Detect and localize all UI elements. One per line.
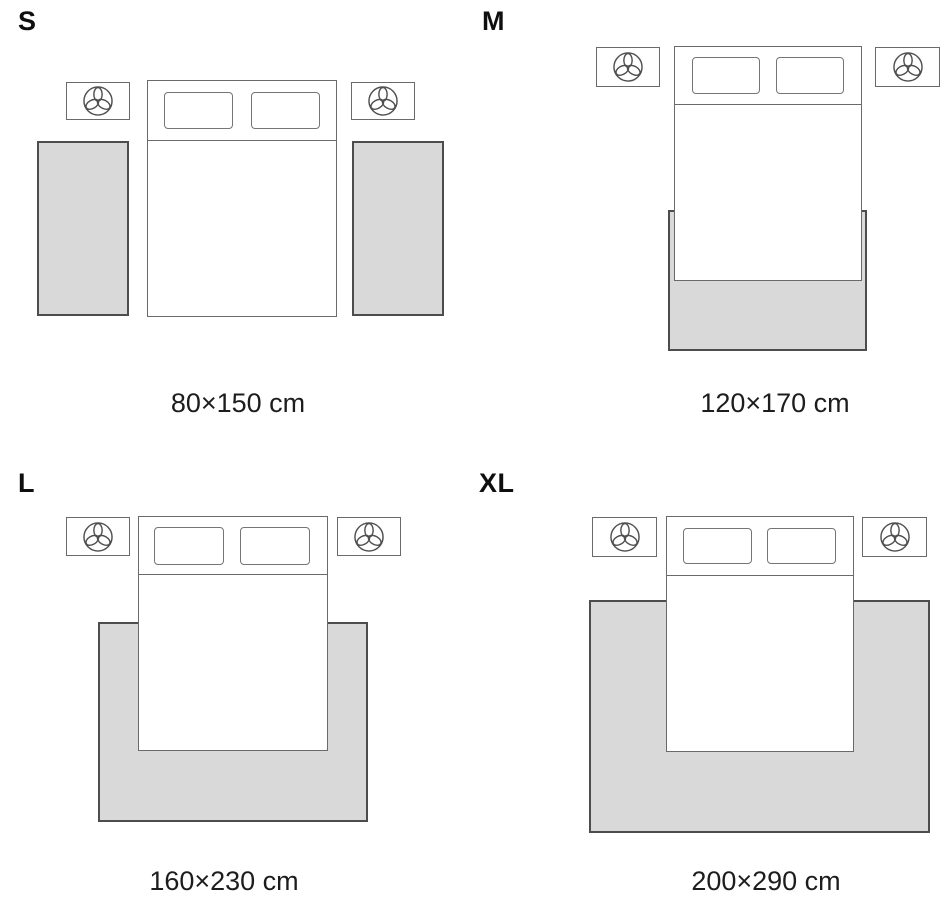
rug-left <box>37 141 129 316</box>
pillow-right <box>776 57 844 94</box>
bed <box>674 46 862 281</box>
size-label-m: M <box>482 8 505 35</box>
size-caption-s: 80×150 cm <box>88 388 388 419</box>
bed <box>147 80 337 317</box>
size-caption-l: 160×230 cm <box>74 866 374 897</box>
nightstand-left <box>596 47 660 87</box>
nightstand-left <box>592 517 657 557</box>
pillow-left <box>683 528 752 564</box>
pillow-right <box>240 527 310 565</box>
rug-size-guide-diagram: S 80×150 cm M <box>0 0 950 900</box>
size-panel-m: M 120×170 cm <box>475 0 950 450</box>
size-panel-s: S 80×150 cm <box>0 0 475 450</box>
pillow-right <box>251 92 320 129</box>
size-caption-m: 120×170 cm <box>625 388 925 419</box>
pillow-left <box>154 527 224 565</box>
pillow-left <box>164 92 233 129</box>
size-label-l: L <box>18 470 35 497</box>
size-label-s: S <box>18 8 37 35</box>
nightstand-right <box>875 47 940 87</box>
trefoil-plant-icon <box>365 83 401 119</box>
pillow-right <box>767 528 836 564</box>
nightstand-right <box>351 82 415 120</box>
size-label-xl: XL <box>479 470 515 497</box>
rug-right <box>352 141 444 316</box>
size-panel-l: L 160×230 cm <box>0 450 475 900</box>
trefoil-plant-icon <box>610 49 646 85</box>
size-caption-xl: 200×290 cm <box>616 866 916 897</box>
nightstand-left <box>66 517 130 556</box>
bed <box>138 516 328 751</box>
trefoil-plant-icon <box>80 519 116 555</box>
nightstand-right <box>337 517 401 556</box>
pillow-left <box>692 57 760 94</box>
size-panel-xl: XL 200×290 cm <box>475 450 950 900</box>
nightstand-right <box>862 517 927 557</box>
trefoil-plant-icon <box>351 519 387 555</box>
trefoil-plant-icon <box>877 519 913 555</box>
trefoil-plant-icon <box>80 83 116 119</box>
nightstand-left <box>66 82 130 120</box>
bed <box>666 516 854 752</box>
trefoil-plant-icon <box>890 49 926 85</box>
trefoil-plant-icon <box>607 519 643 555</box>
